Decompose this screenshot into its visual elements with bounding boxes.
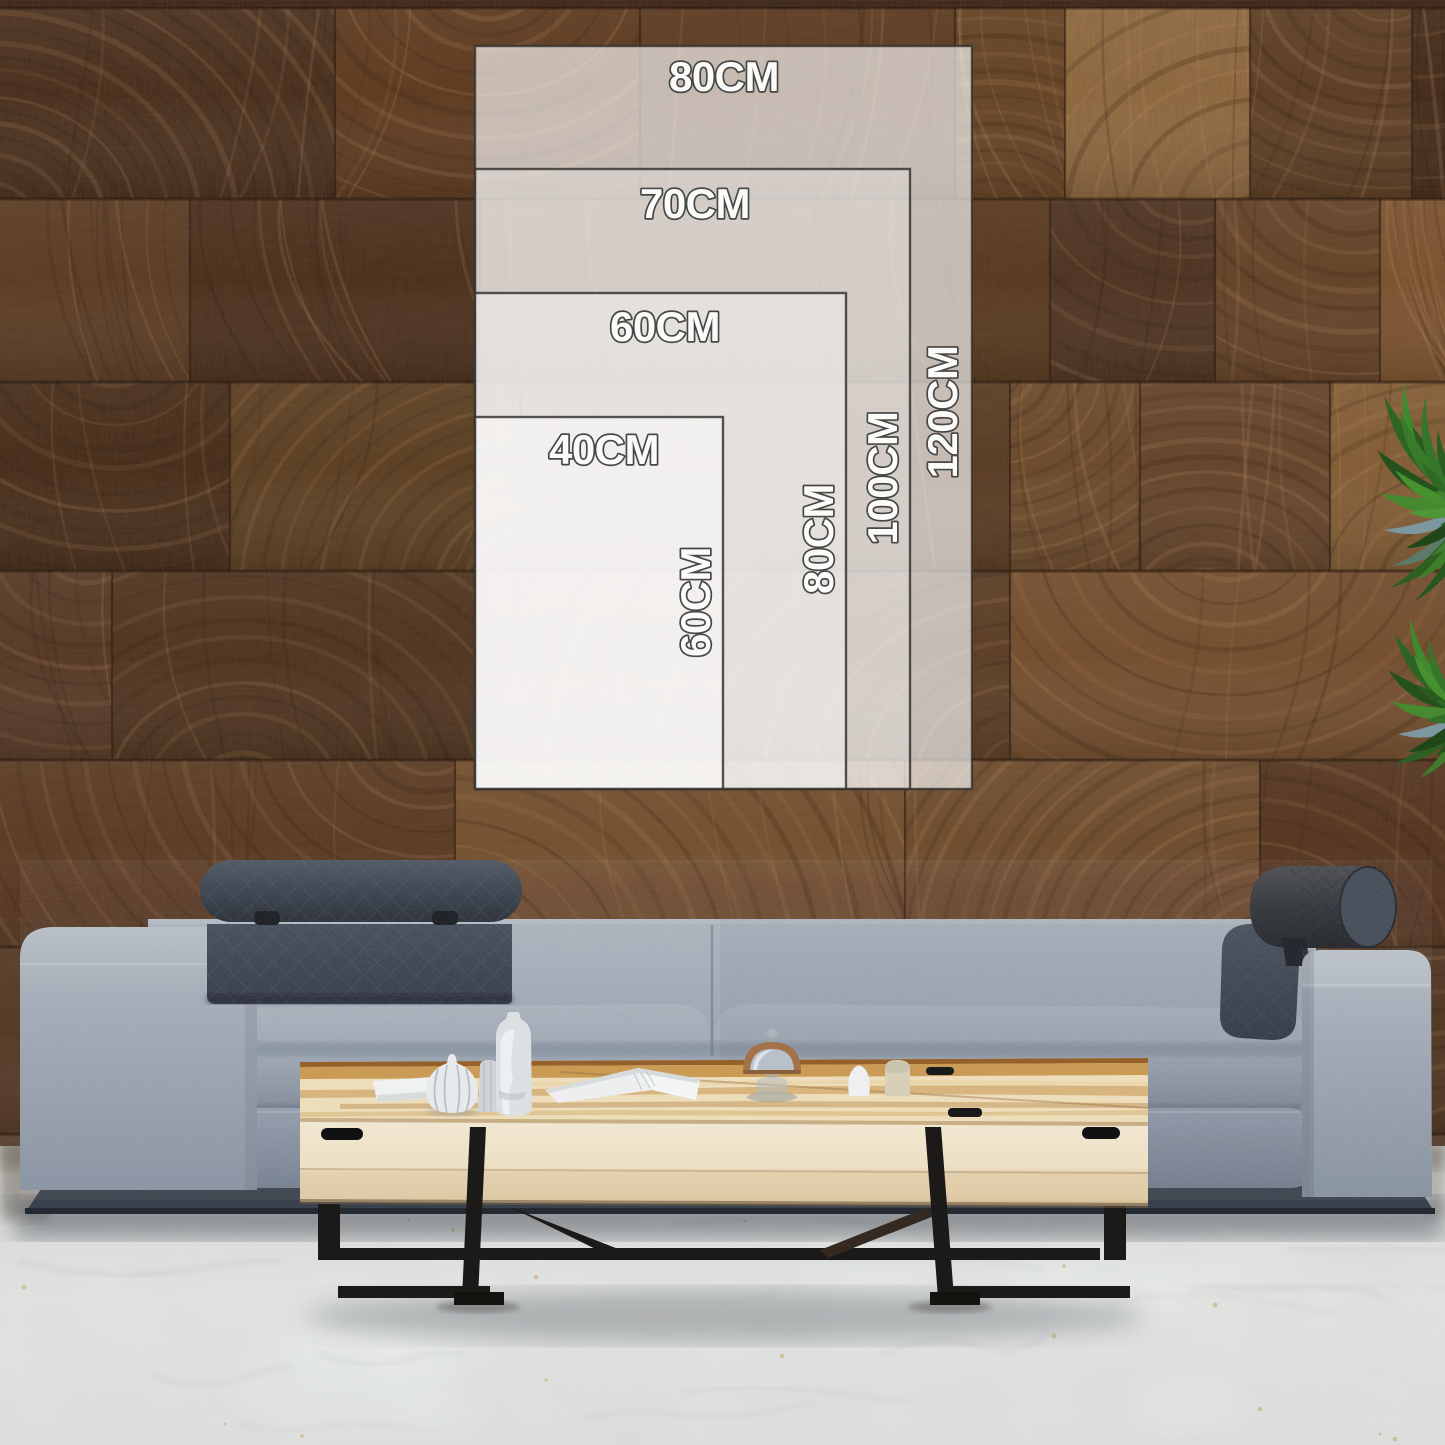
svg-text:120CM: 120CM xyxy=(919,346,966,479)
svg-text:60CM: 60CM xyxy=(610,303,720,350)
svg-text:80CM: 80CM xyxy=(669,53,779,100)
svg-text:60CM: 60CM xyxy=(672,547,719,657)
svg-text:70CM: 70CM xyxy=(640,180,750,227)
svg-text:100CM: 100CM xyxy=(859,412,906,545)
svg-text:40CM: 40CM xyxy=(549,426,659,473)
svg-text:80CM: 80CM xyxy=(795,484,842,594)
